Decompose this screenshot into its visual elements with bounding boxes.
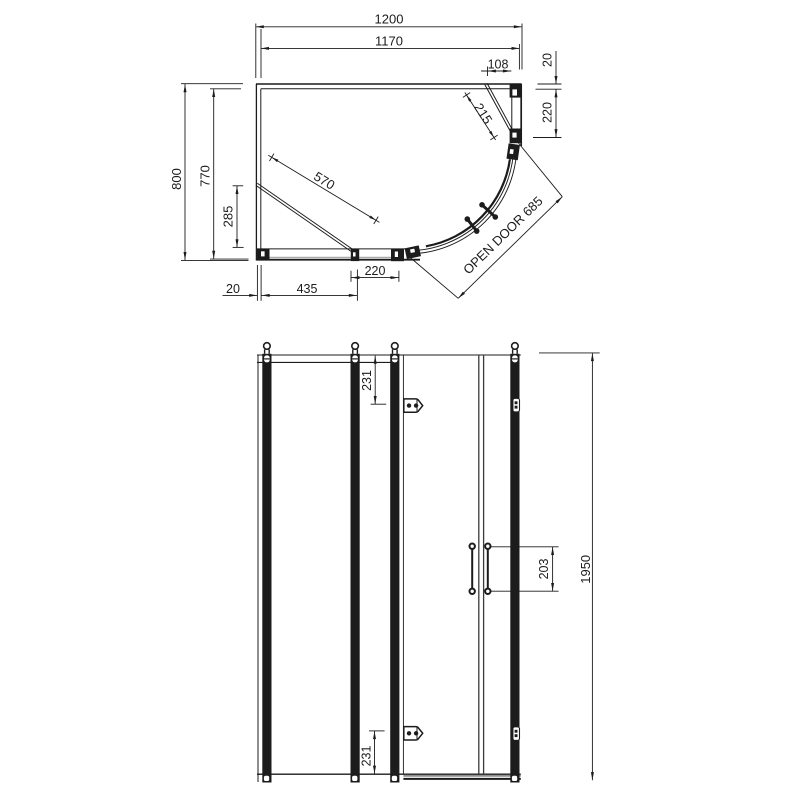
svg-text:800: 800 [169,168,184,190]
svg-text:1170: 1170 [375,33,403,48]
svg-text:1950: 1950 [578,555,593,584]
svg-text:1200: 1200 [375,12,404,27]
svg-text:231: 231 [360,746,374,767]
svg-text:215: 215 [471,100,495,126]
svg-text:231: 231 [360,370,374,391]
svg-text:OPEN DOOR 685: OPEN DOOR 685 [460,193,546,277]
svg-text:220: 220 [541,102,555,123]
svg-text:435: 435 [297,282,318,296]
svg-text:570: 570 [311,169,337,193]
svg-text:20: 20 [226,282,240,296]
svg-text:770: 770 [198,165,213,187]
svg-text:108: 108 [488,57,509,71]
svg-text:220: 220 [365,264,386,278]
svg-text:203: 203 [537,559,551,580]
svg-text:285: 285 [221,206,236,228]
svg-text:20: 20 [541,53,555,67]
